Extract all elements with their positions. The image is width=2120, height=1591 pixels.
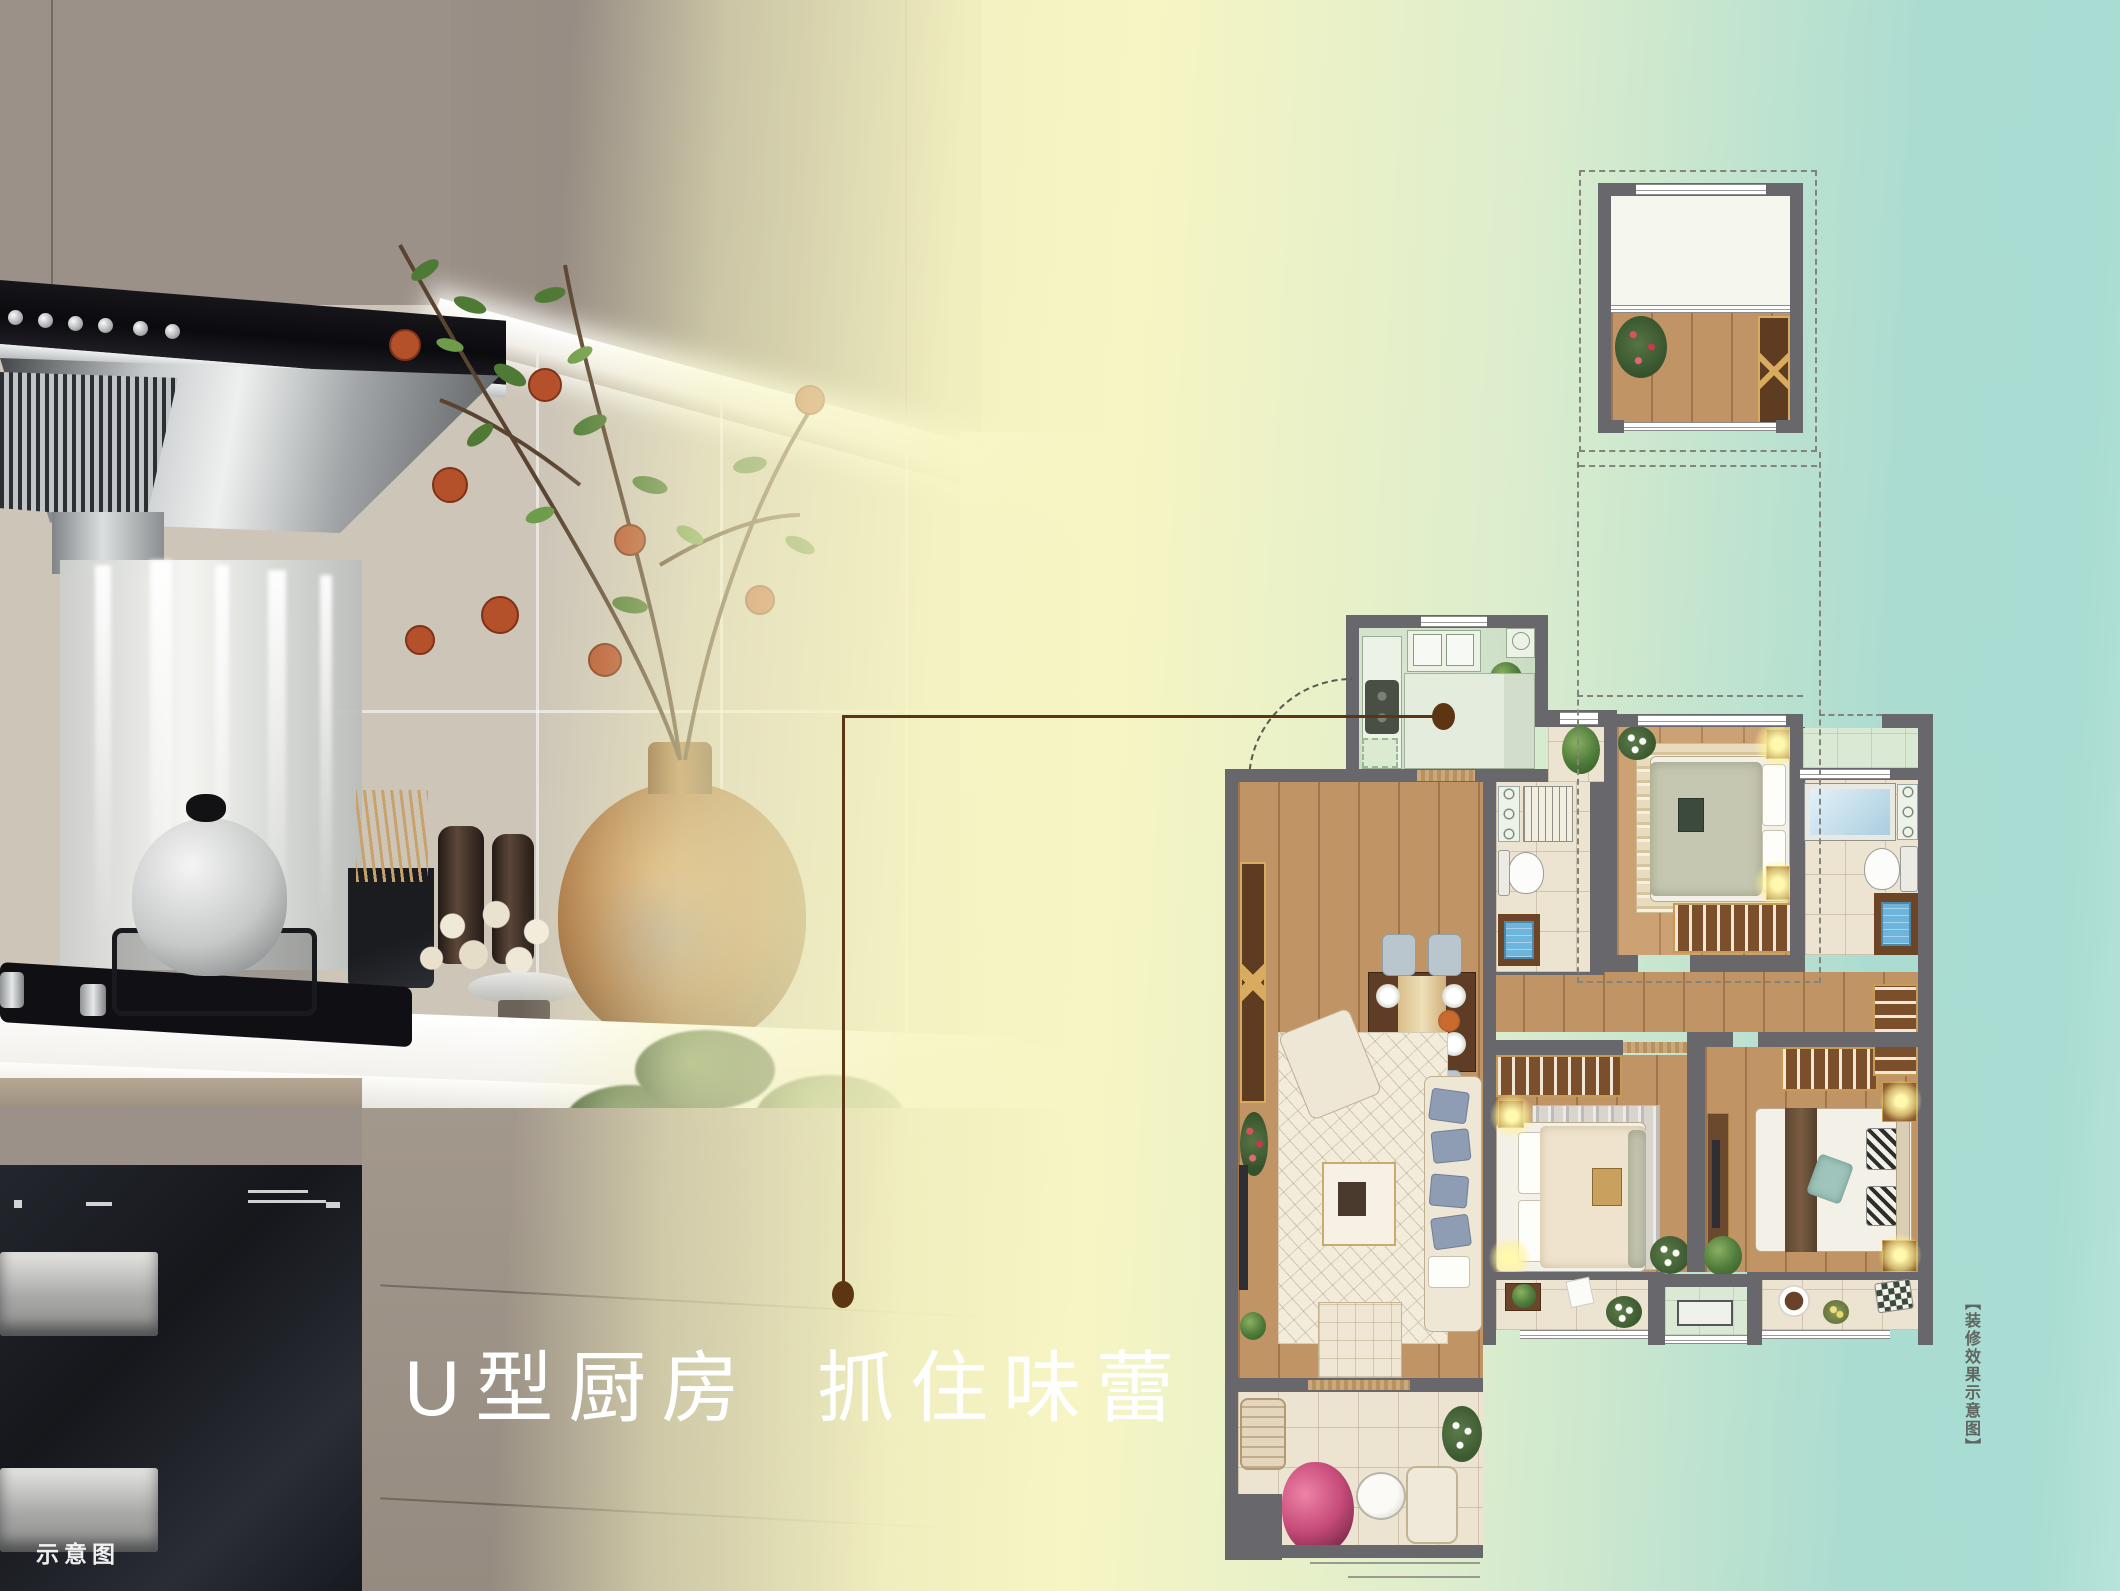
poster-canvas: U型厨房 抓住味蕾 示意图 【装修效果示意图】: [0, 0, 2120, 1591]
watermark: 示意图: [36, 1535, 120, 1569]
text-layer: U型厨房 抓住味蕾 示意图 【装修效果示意图】: [0, 0, 2120, 1591]
side-caption: 【装修效果示意图】: [1958, 1294, 1982, 1456]
headline: U型厨房 抓住味蕾: [404, 1326, 1189, 1438]
